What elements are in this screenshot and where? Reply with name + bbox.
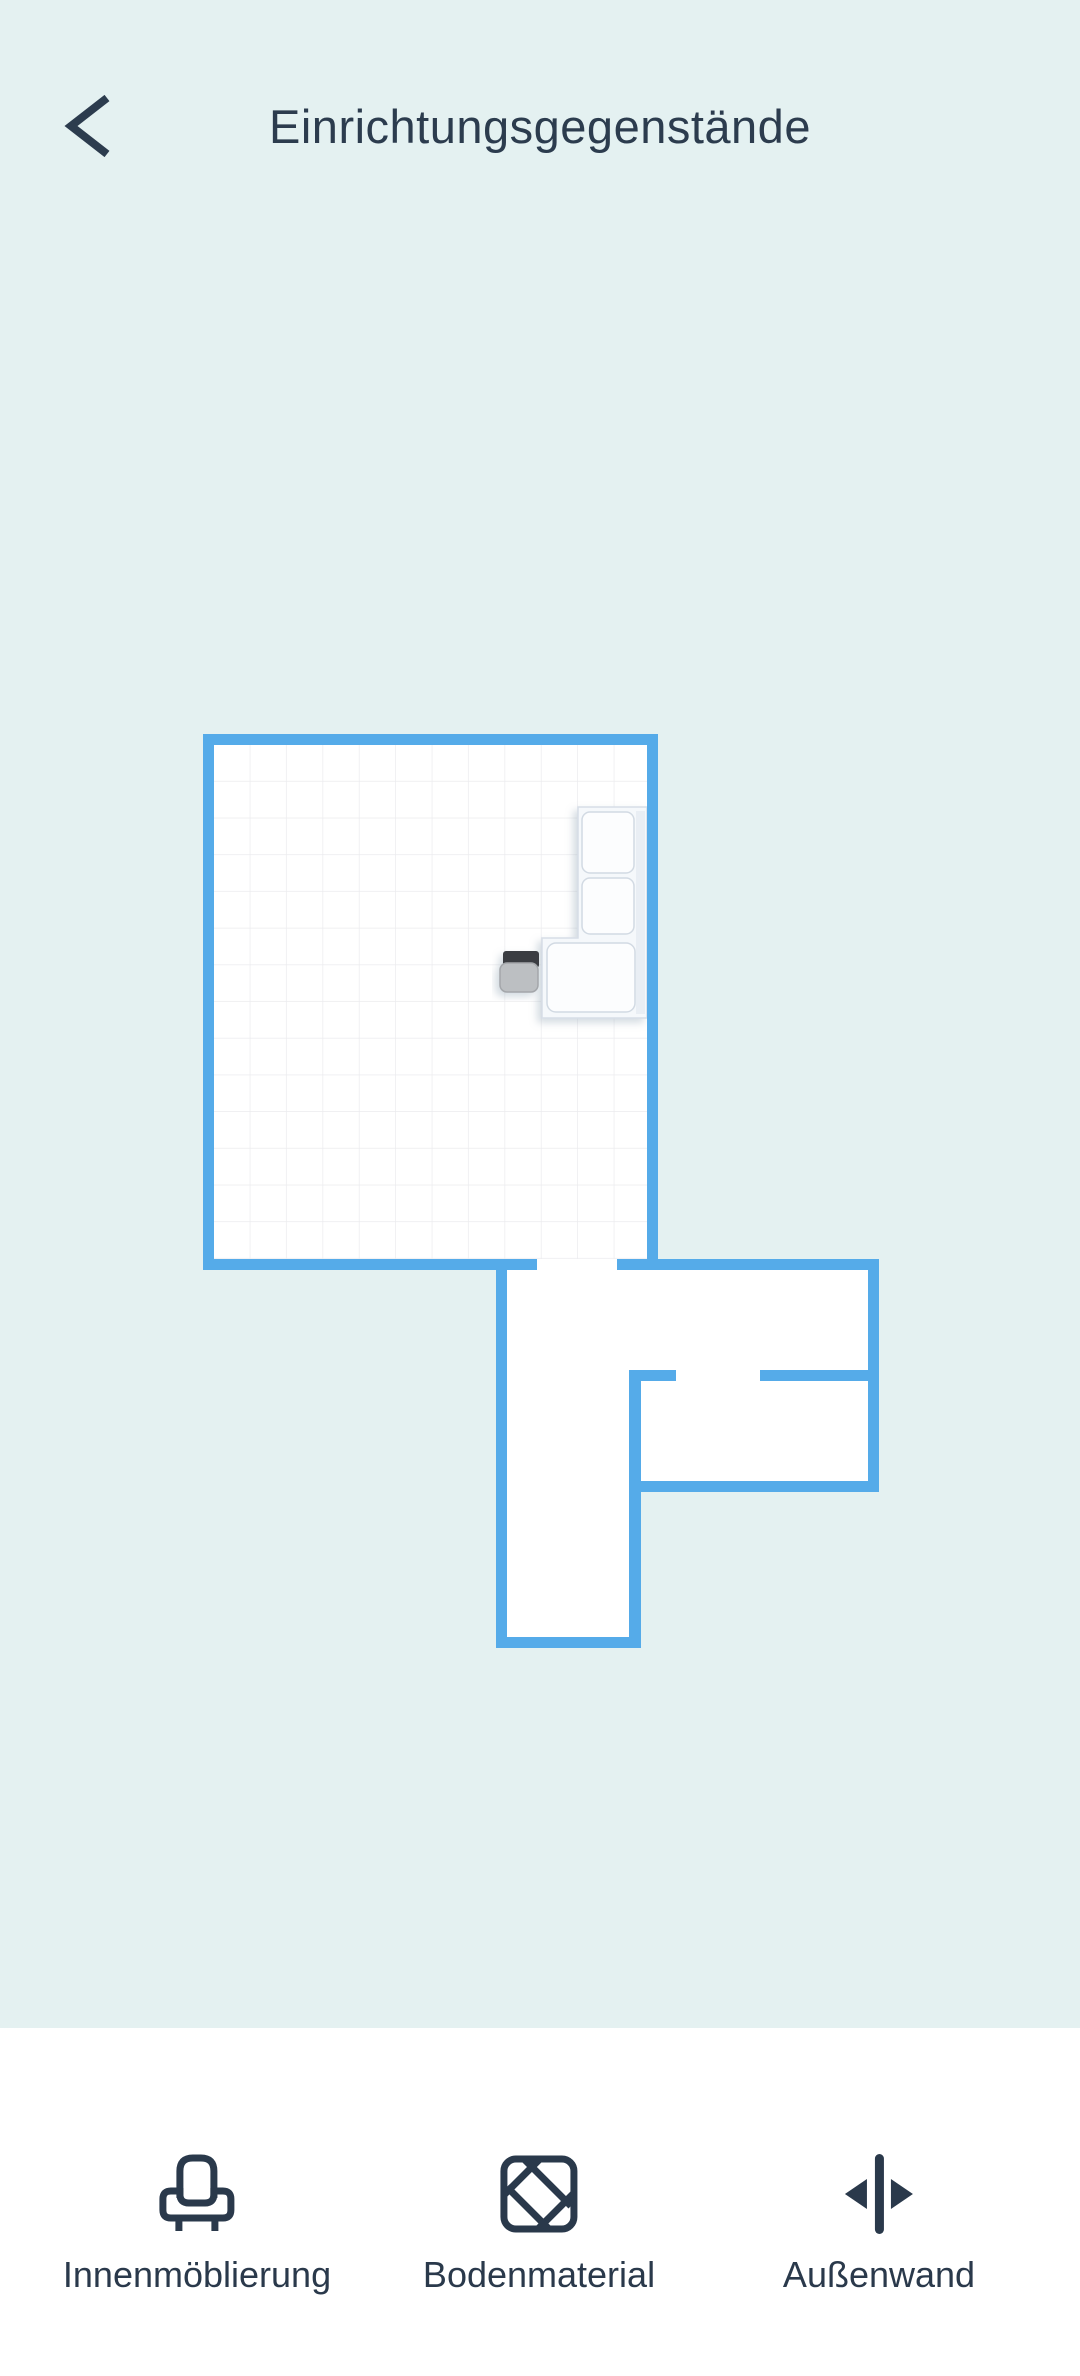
wall-main-right — [647, 734, 658, 1270]
tab-label: Bodenmaterial — [423, 2254, 655, 2296]
wall-main-bottom-left — [203, 1259, 537, 1270]
tab-label: Außenwand — [783, 2254, 975, 2296]
floorplan-canvas[interactable] — [0, 0, 1080, 2376]
wall-width-icon — [831, 2146, 927, 2242]
wall-corridor-bottom — [496, 1637, 641, 1648]
wall-wing-top — [617, 1259, 879, 1270]
sofa-chaise-cushion — [547, 943, 635, 1012]
tab-label: Innenmöblierung — [63, 2254, 331, 2296]
sofa-backrest — [636, 811, 645, 1014]
wall-corridor-left — [496, 1259, 507, 1648]
bottom-toolbar: Innenmöblierung — [0, 2028, 1080, 2376]
tab-bodenmaterial[interactable]: Bodenmaterial — [423, 2146, 655, 2296]
app-screen: Einrichtungsgegenstände — [0, 0, 1080, 2376]
wall-wing-divider-left — [629, 1370, 676, 1381]
wall-main-top — [203, 734, 658, 745]
doorway-floor — [537, 1259, 617, 1271]
wall-wing-bottom — [629, 1481, 879, 1492]
wall-main-left — [203, 734, 214, 1270]
corridor-floor — [507, 1270, 629, 1637]
small-chair[interactable] — [500, 951, 539, 992]
sofa-cushion — [582, 878, 634, 934]
chair-seat — [500, 963, 538, 992]
wall-wing-right — [868, 1259, 879, 1492]
tab-aussenwand[interactable]: Außenwand — [783, 2146, 975, 2296]
tab-innenmoeblierung[interactable]: Innenmöblierung — [63, 2146, 331, 2296]
armchair-icon — [149, 2146, 245, 2242]
wall-corridor-right — [629, 1370, 641, 1648]
floor-tiles-icon — [491, 2146, 587, 2242]
sofa-cushion — [582, 812, 634, 873]
wall-wing-divider-right — [760, 1370, 868, 1381]
